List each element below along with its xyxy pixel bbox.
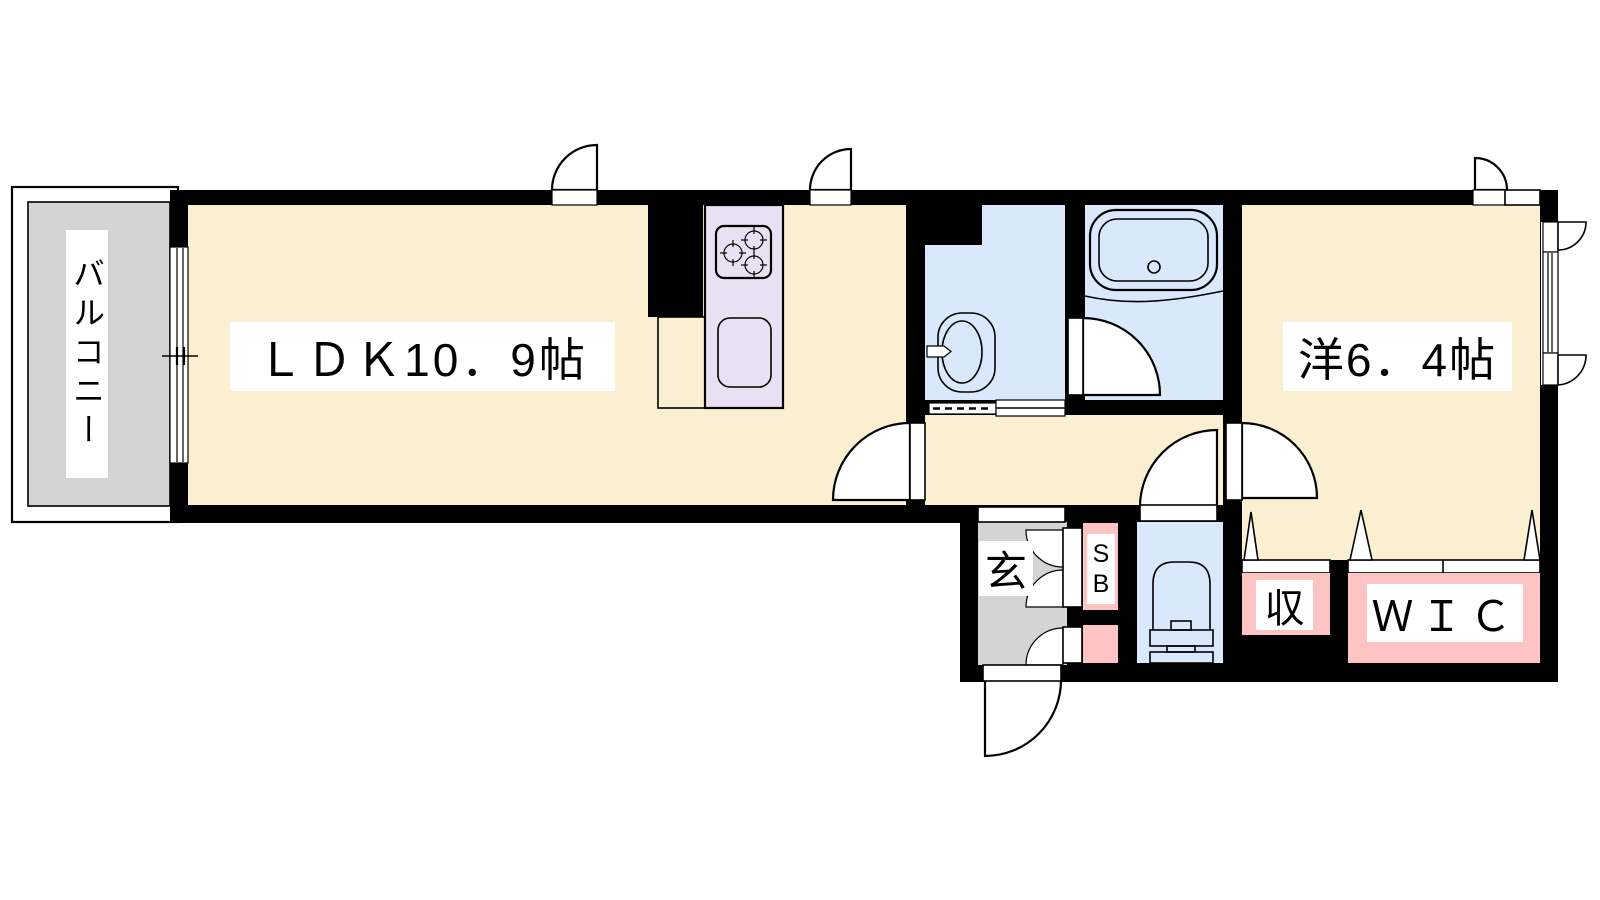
label-shoe-box: S B: [1087, 534, 1115, 604]
wic-door-track: [1348, 560, 1540, 573]
storage-door-track: [1242, 560, 1330, 573]
label-entrance: 玄: [979, 541, 1033, 596]
label-western-room: 洋6．4帖: [1283, 322, 1512, 391]
label-ldk: ＬＤＫ10．9帖: [230, 322, 615, 391]
door-top-kitchen: [810, 149, 851, 205]
wall-kitchen-pillar: [648, 205, 703, 317]
label-shoe-box-line2: B: [1093, 569, 1110, 599]
label-shoe-box-line1: S: [1093, 539, 1110, 569]
genkan-storage-box: [1083, 625, 1118, 663]
door-washroom-sliding: [996, 400, 1065, 416]
window-bedroom-right: [1541, 222, 1586, 385]
door-entrance: [983, 665, 1061, 756]
wall-bottom-ldk: [170, 505, 978, 523]
casement-window-bottom-icon: [1558, 355, 1586, 385]
door-bedroom-top: [1473, 158, 1507, 205]
window-bedroom-top: [1505, 190, 1540, 205]
label-balcony: バルコニー: [66, 230, 108, 478]
door-top-left: [552, 145, 597, 205]
floor-plan-canvas: [0, 0, 1600, 900]
wall-washroom-notch: [925, 205, 982, 245]
door-washroom-louver: [929, 403, 996, 414]
wall-bath-hall: [1085, 400, 1223, 415]
casement-window-top-icon: [1558, 222, 1586, 250]
label-storage: 収: [1256, 580, 1313, 630]
wall-top: [170, 190, 1558, 205]
label-walk-in-closet: ＷＩＣ: [1367, 584, 1523, 642]
hall-genkan-opening: [978, 507, 1065, 522]
floor-plan: バルコニー ＬＤＫ10．9帖 洋6．4帖 玄 S B 収 ＷＩＣ: [0, 0, 1600, 900]
